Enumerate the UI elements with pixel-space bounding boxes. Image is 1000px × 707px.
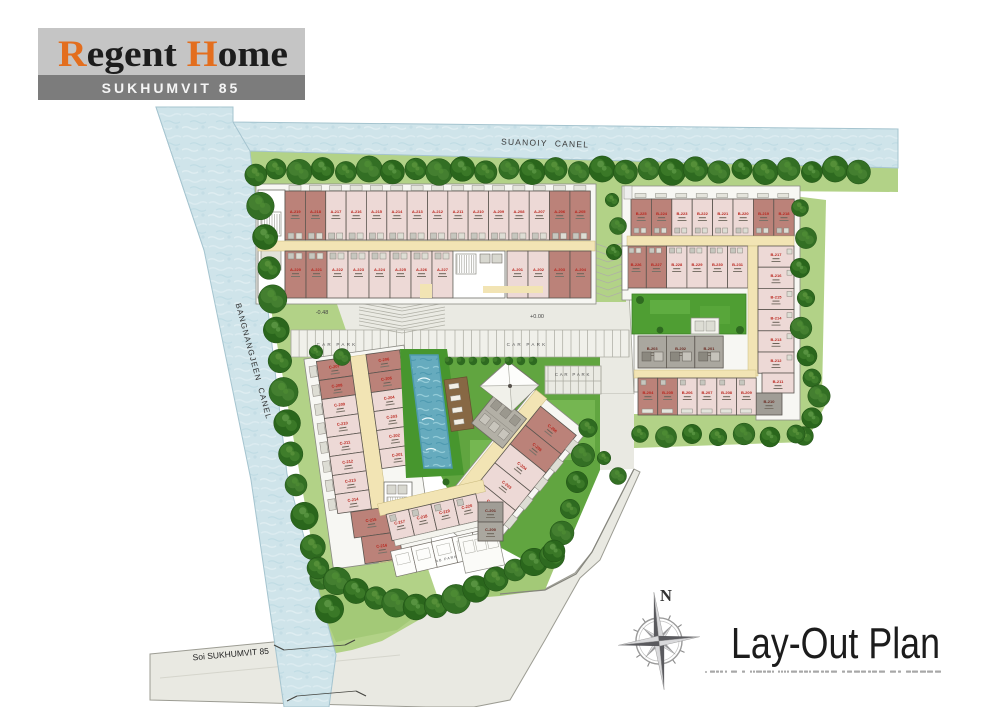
svg-text:A-207: A-207 (534, 209, 546, 214)
svg-text:CAR PARK: CAR PARK (555, 372, 592, 377)
svg-text:A-208: A-208 (514, 209, 526, 214)
svg-text:A-225: A-225 (395, 267, 407, 272)
svg-text:B-226: B-226 (631, 262, 643, 267)
svg-text:A-213: A-213 (412, 209, 424, 214)
svg-text:B-211: B-211 (773, 379, 784, 384)
svg-text:B-209: B-209 (741, 390, 753, 395)
svg-text:A-209: A-209 (493, 209, 505, 214)
svg-text:A-201: A-201 (512, 267, 524, 272)
svg-text:B-228: B-228 (671, 262, 683, 267)
svg-text:A-222: A-222 (332, 267, 344, 272)
svg-text:A-217: A-217 (330, 209, 342, 214)
svg-text:B-217: B-217 (771, 252, 783, 257)
svg-text:A-206: A-206 (554, 209, 566, 214)
svg-text:B-219: B-219 (758, 211, 770, 216)
svg-text:B-208: B-208 (721, 390, 733, 395)
svg-text:A-202: A-202 (533, 267, 545, 272)
svg-text:B-224: B-224 (656, 211, 668, 216)
svg-text:A-218: A-218 (310, 209, 322, 214)
svg-text:B-220: B-220 (738, 211, 750, 216)
svg-text:B-222: B-222 (697, 211, 709, 216)
svg-text:C-200: C-200 (485, 527, 497, 532)
svg-text:CAR PARK: CAR PARK (317, 342, 358, 347)
svg-text:B-214: B-214 (771, 316, 783, 321)
svg-text:A-211: A-211 (453, 209, 464, 214)
svg-text:Regent Home: Regent Home (58, 34, 288, 75)
svg-text:B-205: B-205 (662, 390, 674, 395)
svg-text:N: N (660, 586, 672, 605)
svg-text:A-223: A-223 (353, 267, 365, 272)
svg-text:A-203: A-203 (554, 267, 566, 272)
svg-text:B-202: B-202 (675, 346, 687, 351)
svg-text:+0.00: +0.00 (530, 314, 544, 320)
svg-text:B-212: B-212 (771, 358, 783, 363)
svg-text:B-225: B-225 (636, 211, 648, 216)
svg-text:SUKHUMVIT 85: SUKHUMVIT 85 (102, 80, 241, 96)
svg-text:A-221: A-221 (311, 267, 323, 272)
svg-text:-0.48: -0.48 (316, 310, 329, 316)
svg-text:A-210: A-210 (473, 209, 485, 214)
svg-text:A-216: A-216 (351, 209, 363, 214)
svg-text:Lay-Out Plan: Lay-Out Plan (731, 619, 940, 668)
svg-text:B-221: B-221 (717, 211, 729, 216)
svg-text:B-207: B-207 (702, 390, 714, 395)
svg-text:B-227: B-227 (651, 262, 663, 267)
svg-text:B-201: B-201 (704, 346, 716, 351)
svg-text:B-218: B-218 (779, 211, 791, 216)
svg-text:B-206: B-206 (682, 390, 694, 395)
svg-text:A-227: A-227 (437, 267, 449, 272)
svg-text:B-215: B-215 (771, 294, 783, 299)
svg-text:B-213: B-213 (771, 337, 783, 342)
svg-text:C-201: C-201 (485, 508, 497, 513)
svg-text:B-229: B-229 (692, 262, 704, 267)
svg-text:B-210: B-210 (764, 399, 776, 404)
svg-text:B-204: B-204 (642, 390, 654, 395)
svg-text:A-205: A-205 (575, 209, 587, 214)
svg-text:A-224: A-224 (374, 267, 386, 272)
svg-text:CAR PARK: CAR PARK (507, 342, 548, 347)
svg-text:B-203: B-203 (647, 346, 659, 351)
svg-text:B-230: B-230 (712, 262, 724, 267)
svg-text:B-216: B-216 (771, 273, 783, 278)
svg-text:A-219: A-219 (290, 209, 302, 214)
svg-text:A-220: A-220 (290, 267, 302, 272)
svg-text:B-223: B-223 (677, 211, 689, 216)
svg-text:A-214: A-214 (391, 209, 403, 214)
svg-text:A-212: A-212 (432, 209, 444, 214)
svg-text:B-231: B-231 (732, 262, 744, 267)
svg-text:A-215: A-215 (371, 209, 383, 214)
svg-text:A-204: A-204 (575, 267, 587, 272)
svg-text:A-226: A-226 (416, 267, 428, 272)
